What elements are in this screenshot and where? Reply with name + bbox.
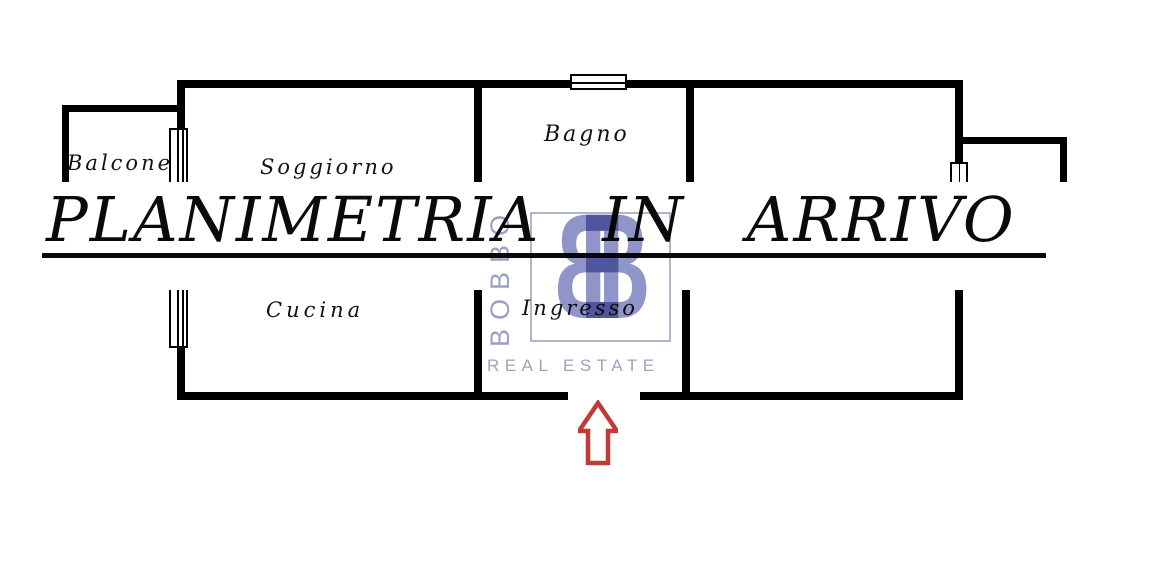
wall-right-step-vertical [1060,137,1067,182]
notice-title: PLANIMETRIA IN ARRIVO [46,189,1016,251]
wall-cucina-ingresso-lower [474,290,482,392]
notice-underline [42,253,1046,258]
wall-balcony-top [62,105,185,112]
room-label-cucina: Cucina [266,298,364,322]
wall-right-upper [955,88,963,162]
room-label-bagno: Bagno [544,122,630,147]
wall-right-step [955,137,1067,144]
wall-right-lower [955,290,963,393]
room-label-soggiorno: Soggiorno [260,155,396,179]
window-bagno-icon [570,74,627,90]
wall-soggiorno-bagno-upper [474,88,482,182]
window-pane-line [572,82,625,84]
wall-bottom-right [640,392,963,400]
floorplan-placeholder-image: Balcone Soggiorno Bagno Cucina Ingresso … [0,0,1160,583]
watermark-tagline: REAL ESTATE [487,356,660,376]
wall-left-upper [177,80,185,128]
wall-bottom-left [177,392,568,400]
wall-bagno-right-upper [686,88,694,182]
entrance-arrow-shape [579,403,617,463]
entrance-up-arrow-icon [578,400,618,466]
room-label-balcone: Balcone [67,151,173,175]
room-label-ingresso: Ingresso [522,296,638,320]
wall-ingresso-right-lower [682,290,690,392]
window-pane-line [959,164,961,184]
